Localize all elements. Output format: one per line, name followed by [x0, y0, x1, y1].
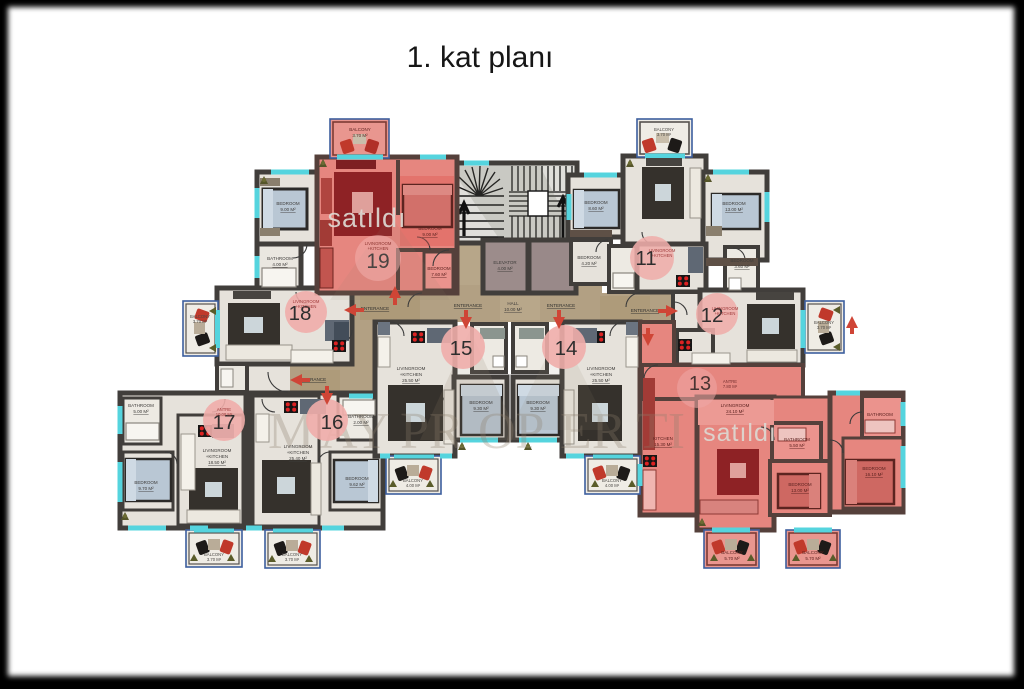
- svg-text:10.00 M²: 10.00 M²: [216, 412, 233, 417]
- svg-text:3.70 M²: 3.70 M²: [207, 557, 222, 562]
- svg-text:4.00 M²: 4.00 M²: [605, 483, 620, 488]
- svg-text:BEDROOM: BEDROOM: [788, 482, 812, 487]
- svg-text:3.70 M²: 3.70 M²: [657, 132, 672, 137]
- svg-text:+KITCHEN: +KITCHEN: [368, 246, 389, 251]
- svg-text:5.50 M²: 5.50 M²: [789, 443, 805, 448]
- svg-text:LIVINGROOM: LIVINGROOM: [397, 366, 426, 371]
- svg-text:ELEVATOR: ELEVATOR: [493, 260, 517, 265]
- svg-text:+KITCHEN: +KITCHEN: [400, 372, 422, 377]
- svg-text:BALCONY: BALCONY: [349, 127, 371, 132]
- svg-text:4.20 M²: 4.20 M²: [581, 261, 597, 266]
- svg-text:3.60 M²: 3.60 M²: [734, 264, 750, 269]
- svg-text:3.70 M²: 3.70 M²: [285, 557, 300, 562]
- svg-text:BEDROOM: BEDROOM: [427, 266, 451, 271]
- svg-text:BEDROOM: BEDROOM: [276, 201, 300, 206]
- svg-text:8.60 M²: 8.60 M²: [588, 206, 604, 211]
- svg-text:9.00 M²: 9.00 M²: [422, 232, 438, 237]
- svg-text:3.70 M²: 3.70 M²: [193, 319, 208, 324]
- svg-text:3.70 M²: 3.70 M²: [352, 133, 368, 138]
- svg-text:13: 13: [689, 373, 711, 395]
- svg-text:BEDROOM: BEDROOM: [730, 258, 754, 263]
- svg-text:7.80 M²: 7.80 M²: [723, 384, 738, 389]
- svg-text:25.50 M²: 25.50 M²: [592, 378, 610, 383]
- svg-text:10.00 M²: 10.00 M²: [504, 307, 522, 312]
- svg-text:24.10 M²: 24.10 M²: [726, 409, 744, 414]
- svg-text:LIVINGROOM: LIVINGROOM: [284, 444, 313, 449]
- svg-text:9.30 M²: 9.30 M²: [473, 406, 489, 411]
- svg-text:9.00 M²: 9.00 M²: [280, 207, 296, 212]
- svg-text:+KITCHEN: +KITCHEN: [287, 450, 309, 455]
- svg-text:18.50 M²: 18.50 M²: [208, 460, 226, 465]
- svg-text:BEDROOM: BEDROOM: [469, 400, 493, 405]
- svg-text:TI: TI: [636, 403, 685, 460]
- svg-text:ENTERANCE: ENTERANCE: [547, 303, 575, 308]
- svg-text:5.70 M²: 5.70 M²: [724, 556, 740, 561]
- svg-text:BEDROOM: BEDROOM: [722, 201, 746, 206]
- svg-text:9.70 M²: 9.70 M²: [138, 486, 154, 491]
- svg-text:4.00 M²: 4.00 M²: [497, 266, 513, 271]
- svg-text:LIVINGROOM: LIVINGROOM: [721, 403, 750, 408]
- svg-text:BALCONY: BALCONY: [721, 550, 743, 555]
- svg-text:+KITCHEN: +KITCHEN: [206, 454, 228, 459]
- svg-text:BATHROOM: BATHROOM: [128, 403, 154, 408]
- svg-text:13.00 M²: 13.00 M²: [791, 488, 809, 493]
- svg-text:ENTERANCE: ENTERANCE: [454, 303, 482, 308]
- svg-text:5.70 M²: 5.70 M²: [805, 556, 821, 561]
- svg-text:14: 14: [555, 337, 578, 360]
- svg-text:7.60 M²: 7.60 M²: [431, 272, 447, 277]
- svg-text:13.00 M²: 13.00 M²: [725, 207, 743, 212]
- svg-text:15: 15: [450, 337, 473, 360]
- svg-text:BALCONY: BALCONY: [802, 550, 824, 555]
- svg-text:9.62 M²: 9.62 M²: [349, 482, 365, 487]
- svg-text:2.00 M²: 2.00 M²: [353, 420, 369, 425]
- svg-text:satıldı: satıldı: [327, 203, 406, 233]
- svg-text:KITCHEN: KITCHEN: [653, 436, 673, 441]
- svg-text:3.70 M²: 3.70 M²: [817, 325, 832, 330]
- svg-text:satıldı: satıldı: [703, 419, 777, 447]
- svg-text:LIVINGROOM: LIVINGROOM: [203, 448, 232, 453]
- svg-text:ENTERANCE: ENTERANCE: [631, 308, 659, 313]
- svg-text:BATHROOM: BATHROOM: [867, 412, 893, 417]
- svg-text:25.40 M²: 25.40 M²: [289, 456, 307, 461]
- svg-text:19: 19: [366, 250, 389, 273]
- svg-text:+KITCHEN: +KITCHEN: [590, 372, 612, 377]
- svg-text:BATHROOM: BATHROOM: [348, 414, 374, 419]
- svg-text:25.50 M²: 25.50 M²: [402, 378, 420, 383]
- svg-text:BEDROOM: BEDROOM: [345, 476, 369, 481]
- svg-text:BEDROOM: BEDROOM: [577, 255, 601, 260]
- svg-text:HALL: HALL: [507, 301, 519, 306]
- svg-text:BEDROOM: BEDROOM: [134, 480, 158, 485]
- svg-text:4.00 M²: 4.00 M²: [272, 262, 288, 267]
- svg-text:+KITCHEN: +KITCHEN: [715, 311, 736, 316]
- svg-text:15.30 M²: 15.30 M²: [654, 442, 672, 447]
- svg-text:BEDROOM: BEDROOM: [418, 226, 442, 231]
- svg-text:BEDROOM: BEDROOM: [584, 200, 608, 205]
- svg-text:+KITCHEN: +KITCHEN: [296, 304, 317, 309]
- svg-text:9.30 M²: 9.30 M²: [530, 406, 546, 411]
- svg-text:+KITCHEN: +KITCHEN: [652, 253, 673, 258]
- svg-text:BATHROOM: BATHROOM: [784, 437, 810, 442]
- svg-text:LIVINGROOM: LIVINGROOM: [587, 366, 616, 371]
- svg-text:5.00 M²: 5.00 M²: [133, 409, 149, 414]
- svg-text:16.10 M²: 16.10 M²: [865, 472, 883, 477]
- svg-text:BATHROOM: BATHROOM: [267, 256, 293, 261]
- svg-text:BEDROOM: BEDROOM: [526, 400, 550, 405]
- svg-text:4.00 M²: 4.00 M²: [406, 483, 421, 488]
- svg-text:16: 16: [321, 411, 344, 434]
- svg-text:BEDROOM: BEDROOM: [862, 466, 886, 471]
- svg-text:ENTERANCE: ENTERANCE: [361, 306, 389, 311]
